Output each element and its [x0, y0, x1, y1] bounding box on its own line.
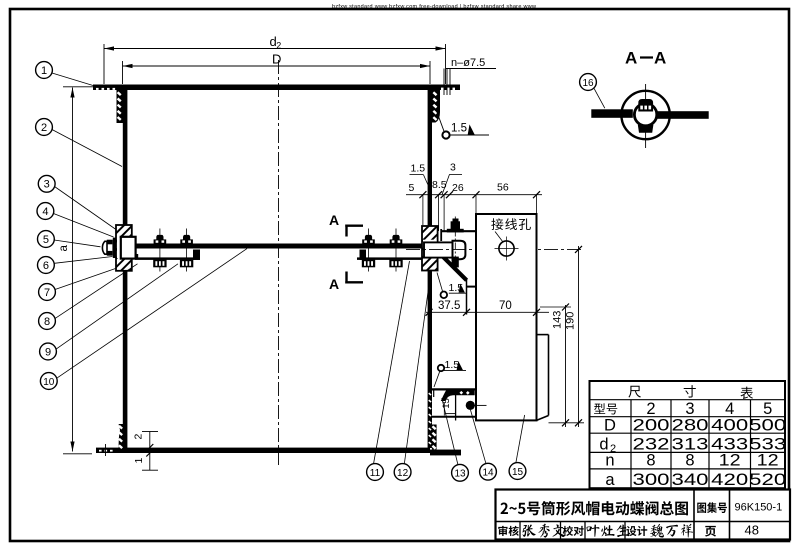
- svg-text:26: 26: [452, 182, 464, 194]
- svg-text:200: 200: [633, 417, 670, 435]
- svg-text:A: A: [654, 49, 666, 68]
- svg-text:3: 3: [450, 162, 456, 174]
- svg-text:48: 48: [745, 523, 759, 538]
- svg-text:n–ø7.5: n–ø7.5: [451, 57, 485, 69]
- svg-text:D: D: [272, 52, 281, 67]
- svg-text:A: A: [329, 212, 339, 228]
- svg-text:9: 9: [45, 346, 51, 358]
- svg-text:3: 3: [685, 400, 694, 418]
- svg-text:5: 5: [763, 400, 772, 418]
- svg-text:400: 400: [711, 417, 748, 435]
- svg-text:a: a: [58, 245, 70, 252]
- svg-text:300: 300: [633, 471, 670, 489]
- svg-text:12: 12: [397, 468, 409, 479]
- svg-text:420: 420: [711, 471, 748, 489]
- svg-text:2: 2: [276, 41, 281, 51]
- svg-text:37.5: 37.5: [438, 300, 460, 312]
- svg-text:a: a: [605, 471, 615, 489]
- svg-text:12: 12: [757, 452, 779, 470]
- svg-text:1.5: 1.5: [451, 123, 467, 135]
- svg-text:8: 8: [685, 452, 694, 470]
- svg-text:12: 12: [719, 452, 741, 470]
- svg-text:2: 2: [41, 122, 47, 134]
- svg-text:1.5: 1.5: [411, 162, 426, 174]
- svg-text:1: 1: [133, 458, 145, 464]
- svg-text:10: 10: [43, 377, 55, 388]
- svg-text:1: 1: [41, 65, 47, 77]
- svg-text:340: 340: [672, 471, 709, 489]
- svg-text:4: 4: [725, 400, 734, 418]
- svg-text:96K150-1: 96K150-1: [735, 502, 783, 514]
- svg-text:2: 2: [646, 400, 655, 418]
- svg-text:190: 190: [565, 312, 577, 330]
- svg-text:280: 280: [672, 417, 709, 435]
- svg-text:143: 143: [552, 311, 564, 329]
- svg-text:16: 16: [582, 78, 594, 89]
- svg-text:3: 3: [44, 179, 50, 191]
- svg-text:8: 8: [646, 452, 655, 470]
- svg-text:7: 7: [44, 287, 50, 299]
- svg-text:6: 6: [43, 260, 49, 272]
- svg-text:14: 14: [482, 468, 494, 479]
- svg-text:70: 70: [499, 300, 512, 312]
- svg-text:D: D: [604, 417, 616, 435]
- svg-text:n: n: [605, 452, 614, 470]
- svg-text:8: 8: [44, 316, 50, 328]
- svg-text:15: 15: [512, 467, 524, 478]
- svg-text:56: 56: [497, 182, 509, 194]
- svg-text:5: 5: [43, 234, 49, 246]
- svg-text:13: 13: [454, 469, 466, 480]
- svg-text:2: 2: [133, 434, 145, 440]
- svg-text:520: 520: [749, 471, 786, 489]
- svg-text:A: A: [329, 276, 339, 292]
- svg-text:11: 11: [370, 468, 381, 479]
- svg-text:A: A: [625, 49, 637, 68]
- svg-text:4: 4: [42, 206, 48, 218]
- svg-text:5: 5: [409, 182, 415, 194]
- svg-text:500: 500: [749, 417, 786, 435]
